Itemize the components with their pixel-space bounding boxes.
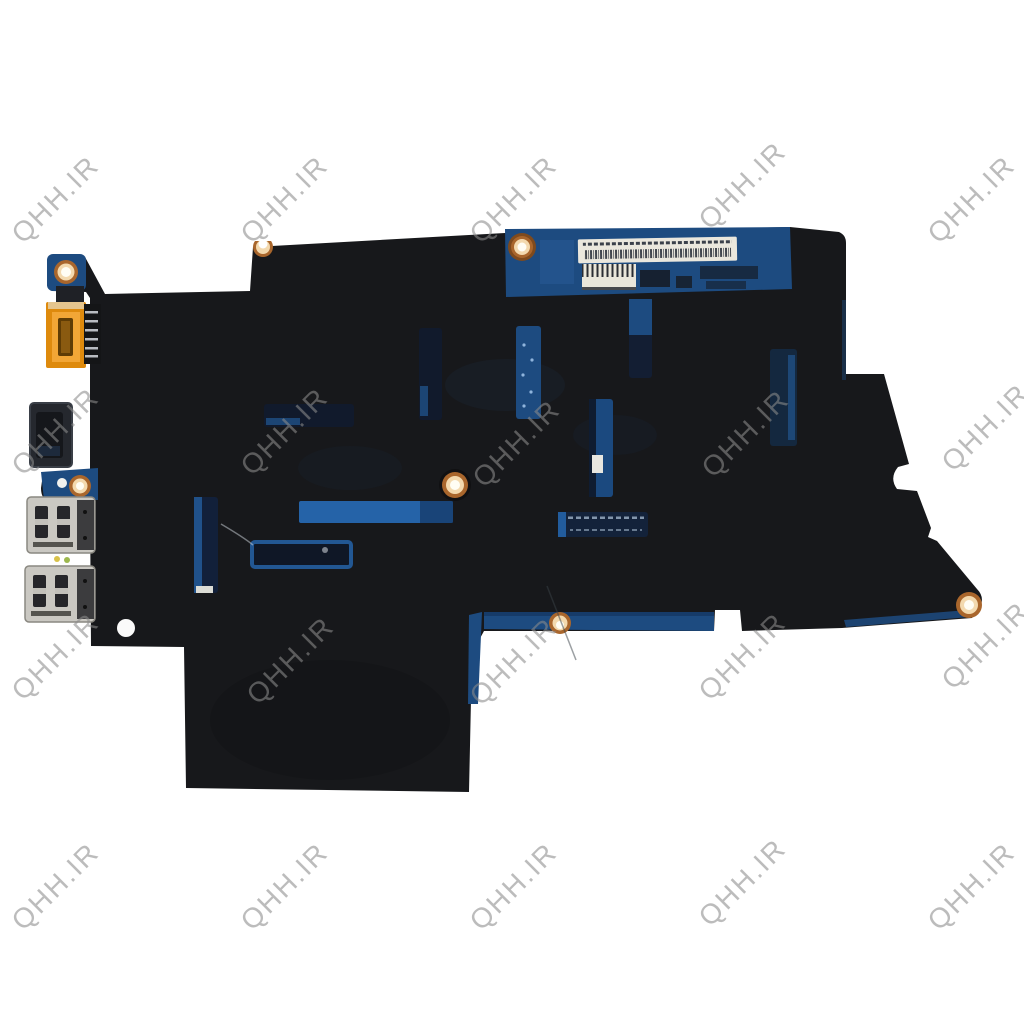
watermark-text: QHH.IR [921, 149, 1021, 249]
pin-header-connector [582, 264, 636, 290]
watermark-text: QHH.IR [692, 832, 792, 932]
watermark-text: QHH.IR [692, 135, 792, 235]
board [25, 227, 982, 792]
slot-white-cap [196, 586, 213, 593]
screw-hole-center [439, 469, 471, 501]
slot-7 [252, 542, 351, 567]
pcb-highlight [540, 240, 574, 284]
watermark-text: QHH.IR [935, 377, 1024, 477]
motherboard-graphic: QHH.IRQHH.IRQHH.IRQHH.IRQHH.IRQHH.IRQHH.… [0, 0, 1024, 1024]
screw-hole-top [508, 233, 536, 261]
left-pcb-strip [41, 468, 98, 500]
slot-6 [299, 501, 453, 523]
slot-1 [419, 328, 442, 420]
watermark-text: QHH.IR [234, 149, 334, 249]
slot-9 [194, 497, 218, 593]
screw-hole-bottom-right [956, 592, 982, 618]
watermark-text: QHH.IR [5, 149, 105, 249]
solder-dot [57, 478, 67, 488]
watermark-text: QHH.IR [5, 836, 105, 936]
mylar-cover [41, 227, 982, 792]
dc-connector-pins [84, 304, 101, 364]
white-capacitor [592, 455, 603, 473]
watermark-text: QHH.IR [921, 836, 1021, 936]
corner-tab-pcb [47, 254, 86, 291]
watermark-text: QHH.IR [234, 836, 334, 936]
punch-hole [117, 619, 135, 637]
slot-3 [629, 299, 652, 378]
motherboard-photo: QHH.IRQHH.IRQHH.IRQHH.IRQHH.IRQHH.IRQHH.… [0, 0, 1024, 1024]
right-edge-pcb-line [842, 300, 846, 380]
slot-8 [558, 512, 648, 537]
slot-5 [589, 399, 613, 497]
pcb-top-edge [505, 227, 792, 297]
usb-smd-parts [54, 556, 70, 563]
usb-port-upper [27, 497, 95, 553]
watermark-text: QHH.IR [463, 836, 563, 936]
barcode-label [578, 237, 737, 264]
